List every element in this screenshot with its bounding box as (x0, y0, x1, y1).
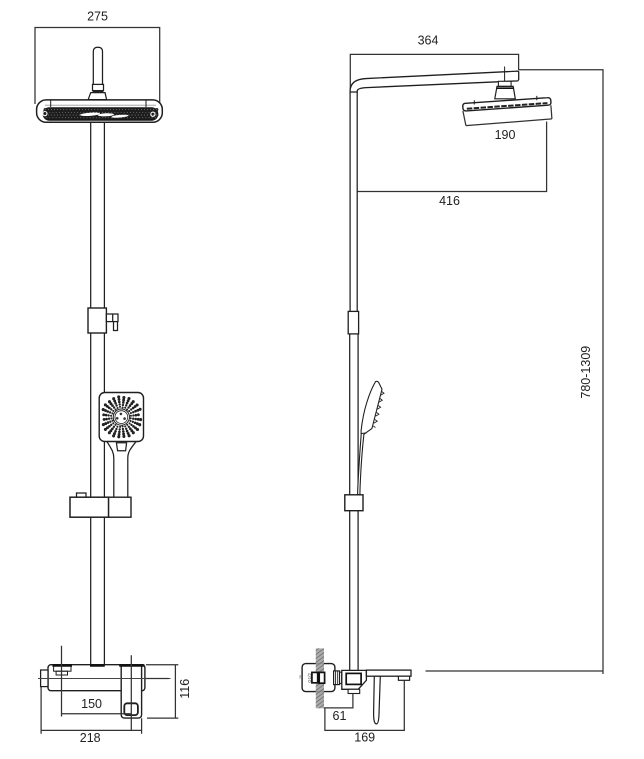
svg-text:116: 116 (178, 679, 192, 699)
svg-text:25: 25 (299, 675, 303, 679)
svg-text:275: 275 (87, 10, 108, 24)
svg-text:150: 150 (81, 697, 102, 711)
svg-text:61: 61 (333, 709, 347, 723)
svg-text:416: 416 (439, 194, 460, 208)
svg-text:218: 218 (80, 731, 101, 745)
svg-text:364: 364 (418, 34, 439, 48)
svg-text:190: 190 (495, 128, 516, 142)
svg-text:780-1309: 780-1309 (579, 346, 593, 399)
svg-text:169: 169 (354, 731, 375, 745)
